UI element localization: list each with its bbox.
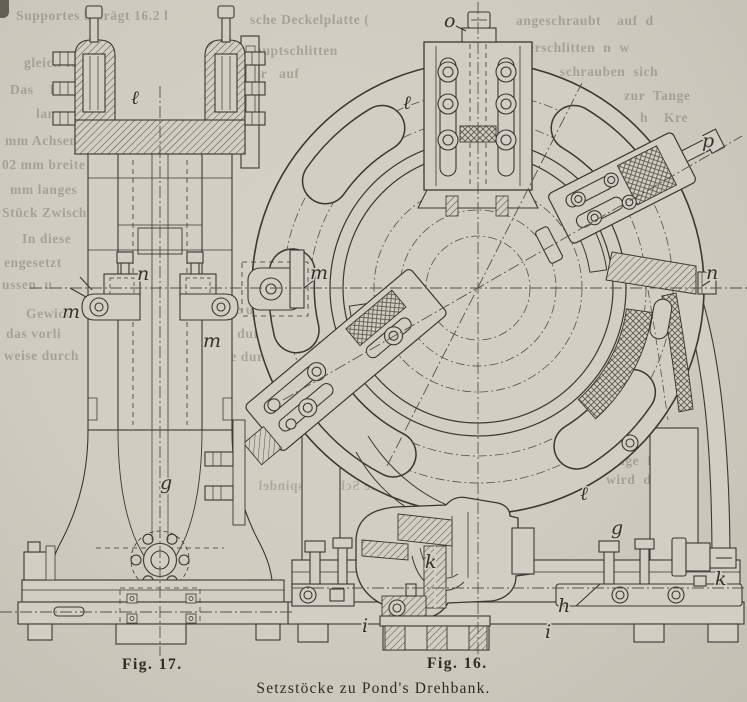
main-caption: Setzstöcke zu Pond's Drehbank. [0,680,747,698]
fig16-ring-steady-rest [226,12,744,650]
fig16-caption: Fig. 16. [427,655,488,673]
part-label-ℓ: ℓ [580,483,588,505]
part-label-g: g [160,472,172,494]
part-label-p: p [702,130,714,152]
flare-right-flange [205,420,245,525]
stud-flange [462,28,496,42]
yoke [53,6,265,168]
rack-teeth [380,616,490,650]
base-foot [634,624,664,642]
part-label-n: n [137,263,149,285]
base-foot [28,624,52,640]
base-tongue [116,624,186,644]
yoke-top-studs [86,6,234,42]
base-foot [708,624,738,642]
part-label-o: o [444,10,455,32]
part-label-i: i [545,621,551,643]
part-label-k: k [715,568,727,590]
technical-drawing: ℓnmmg oℓpnmℓgkkhii [0,0,747,702]
part-label-i: i [362,615,368,637]
part-label-m: m [310,262,328,284]
cylinder-end [512,528,534,574]
face-ring-nut [622,435,638,451]
part-label-h: h [558,595,570,617]
part-label-n: n [706,262,718,284]
part-label-g: g [611,517,623,539]
fig17-caption: Fig. 17. [122,656,183,674]
part-label-m: m [62,301,80,323]
part-label-ℓ: ℓ [403,92,411,114]
base-foot [256,624,280,640]
fig17-column-steady-rest [18,6,288,644]
scanned-book-page: Supportes beträgt 16.2 lgleich ReDas Rei… [0,0,747,702]
small-bolt-hole [286,419,296,429]
part-label-k: k [425,551,437,573]
part-label-m: m [203,330,221,352]
part-label-ℓ: ℓ [131,87,139,109]
base-foot [298,624,328,642]
